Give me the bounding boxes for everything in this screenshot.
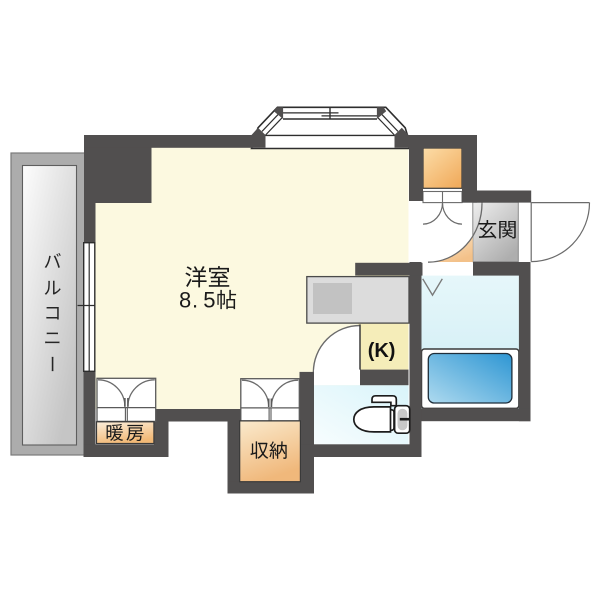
svg-text:(K): (K) xyxy=(368,340,396,362)
svg-text:8.5: 8.5 xyxy=(179,288,215,313)
